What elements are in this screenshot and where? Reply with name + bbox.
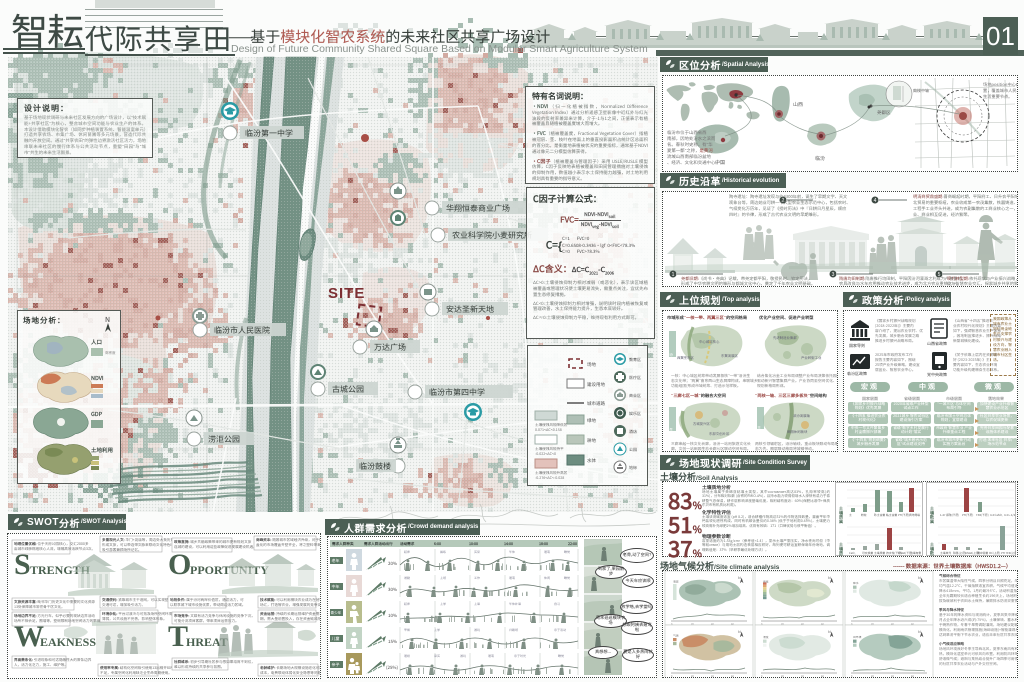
svg-text:22:00: 22:00 bbox=[568, 542, 577, 547]
svg-text:滨汾发展轴: 滨汾发展轴 bbox=[793, 413, 811, 418]
svg-text:游玩: 游玩 bbox=[460, 654, 466, 658]
svg-text:亲子: 亲子 bbox=[332, 662, 340, 668]
svg-text:、经济、文化和交通中心。: 、经济、文化和交通中心。 bbox=[667, 160, 720, 166]
svg-text:主城片区: 主城片区 bbox=[756, 425, 761, 440]
svg-text:态为先、圈层联动格局将城镇带动。: 态为先、圈层联动格局将城镇带动。 bbox=[755, 446, 816, 451]
svg-text:湿度: 湿度 bbox=[763, 635, 769, 639]
svg-text:遛弯: 遛弯 bbox=[509, 576, 515, 580]
svg-text:人，活力化乏力，施工、维护等。: 人，活力化乏力，施工、维护等。 bbox=[14, 662, 68, 668]
svg-text:PH(下层): PH(下层) bbox=[898, 513, 909, 517]
svg-text:需求人群种类: 需求人群种类 bbox=[332, 541, 354, 547]
svg-text:粘土含量: 粘土含量 bbox=[886, 513, 897, 517]
svg-text:古城复兴区: 古城复兴区 bbox=[693, 421, 711, 426]
svg-text:达到旱涝平衡下节水农业，适应未来社区共享农田用水需求。: 达到旱涝平衡下节水农业，适应未来社区共享农田用水需求。 bbox=[939, 632, 1017, 638]
svg-text:(25%): (25%) bbox=[386, 665, 398, 671]
svg-text:廊，文创一站田园生态长廊七区联动空间布局。: 廊，文创一站田园生态长廊七区联动空间布局。 bbox=[671, 446, 751, 451]
svg-text:居宜业、智慧农业中心。: 居宜业、智慧农业中心。 bbox=[875, 367, 916, 373]
svg-text:CaO₃: CaO₃ bbox=[849, 551, 855, 555]
svg-text:18:00: 18:00 bbox=[539, 542, 548, 547]
svg-text:晨练: 晨练 bbox=[440, 550, 446, 554]
svg-text:SITE: SITE bbox=[328, 285, 365, 302]
svg-text:起床: 起床 bbox=[404, 602, 410, 606]
svg-text:0.4 CaSO₄: 0.4 CaSO₄ bbox=[990, 513, 1003, 517]
svg-text:汾河生态带: 汾河生态带 bbox=[668, 353, 673, 372]
svg-text:山西: 山西 bbox=[793, 101, 803, 108]
svg-text:20%: 20% bbox=[388, 561, 397, 567]
svg-text:采买: 采买 bbox=[434, 654, 440, 658]
svg-text:T: T bbox=[168, 620, 188, 653]
svg-text:PH(下层): PH(下层) bbox=[962, 513, 973, 517]
svg-text:高密度: 高密度 bbox=[105, 351, 116, 356]
svg-text:休闲: 休闲 bbox=[544, 576, 550, 580]
svg-text:酒店: 酒店 bbox=[629, 429, 637, 435]
svg-text:土壤质量: 土壤质量 bbox=[874, 551, 885, 555]
svg-text:东部文创片区: 东部文创片区 bbox=[709, 431, 730, 436]
svg-text:PH TEB(上层): PH TEB(上层) bbox=[1001, 551, 1016, 555]
svg-text:可交换量: 可交换量 bbox=[862, 551, 873, 555]
svg-text:儿童: 儿童 bbox=[332, 636, 340, 642]
svg-text:地标: 地标 bbox=[629, 465, 637, 471]
svg-text:1: 1 bbox=[672, 272, 675, 278]
svg-text:业与智慧农业交汇，探索城乡共享的新型农业模式。: 业与智慧农业交汇，探索城乡共享的新型农业模式。 bbox=[947, 281, 1017, 286]
svg-text:西翼生态区: 西翼生态区 bbox=[677, 355, 695, 360]
svg-text:遛娃: 遛娃 bbox=[404, 654, 410, 658]
svg-text:青少年: 青少年 bbox=[331, 610, 342, 616]
svg-text:土地利用: 土地利用 bbox=[91, 446, 114, 454]
svg-text:党中央政策: 党中央政策 bbox=[927, 372, 947, 378]
svg-text:教育区: 教育区 bbox=[629, 357, 641, 363]
svg-text:14:00: 14:00 bbox=[504, 542, 513, 547]
svg-text:业、商业相互促进，经济繁荣。: 业、商业相互促进，经济繁荣。 bbox=[913, 212, 972, 218]
svg-text:形成了中华农耕文明的雏形与都城文化中心，奠定了千年农业文明基: 形成了中华农耕文明的雏形与都城文化中心，奠定了千年农业文明基础。 bbox=[681, 281, 815, 286]
svg-text:30%: 30% bbox=[388, 587, 397, 593]
svg-text:1.47 振殖(下层): 1.47 振殖(下层) bbox=[940, 513, 959, 517]
svg-text:可能分流项目客群，带来项目运营压力。: 可能分流项目客群，带来项目运营压力。 bbox=[174, 618, 239, 624]
svg-text:OC(上层): OC(上层) bbox=[989, 551, 1000, 555]
svg-text:上学: 上学 bbox=[440, 602, 446, 606]
svg-text:亩城市绿肺枢纽核心人流，增幅高效活跃节点3次。: 亩城市绿肺枢纽核心人流，增幅高效活跃节点3次。 bbox=[14, 546, 95, 552]
svg-text:国家导则: 国家导则 bbox=[849, 343, 865, 349]
svg-text:-0.022<ΔC<0: -0.022<ΔC<0 bbox=[535, 452, 556, 457]
svg-text:土壤质地: 土壤质地 bbox=[838, 542, 844, 556]
svg-text:土壤有重: 土壤有重 bbox=[910, 551, 921, 555]
svg-text:安达圣新天地: 安达圣新天地 bbox=[446, 304, 494, 315]
svg-text:通勤: 通勤 bbox=[404, 576, 410, 580]
svg-text:医疗区: 医疗区 bbox=[629, 375, 641, 381]
svg-text:降水: 降水 bbox=[853, 581, 859, 585]
svg-text:尧都区: 尧都区 bbox=[877, 110, 891, 116]
svg-text:质地等级: 质地等级 bbox=[909, 513, 920, 517]
svg-text:的社区共享农业活动与户外交往空间。: 的社区共享农业活动与户外交往空间。 bbox=[939, 661, 1000, 667]
svg-text:3: 3 bbox=[832, 272, 835, 278]
svg-text:交通可达，增加吸引活力。: 交通可达，增加吸引活力。 bbox=[102, 602, 145, 608]
svg-text:遛弯: 遛弯 bbox=[544, 550, 550, 554]
svg-text:买菜: 买菜 bbox=[474, 550, 480, 554]
svg-text:规划新格局形成。: 规划新格局形成。 bbox=[757, 383, 787, 389]
svg-text:TEB(下层): TEB(下层) bbox=[976, 513, 989, 517]
svg-text:薄弱，公共设施不完善，影响整体形象。: 薄弱，公共设施不完善，影响整体形象。 bbox=[102, 616, 167, 622]
svg-text:临汾: 临汾 bbox=[815, 155, 825, 162]
svg-text:4: 4 bbox=[874, 198, 877, 204]
svg-text:东翼发展区: 东翼发展区 bbox=[721, 353, 739, 358]
svg-text:田园休闲板块: 田园休闲板块 bbox=[787, 429, 808, 434]
svg-text:优化产业空间、促进产业转型: 优化产业空间、促进产业转型 bbox=[759, 315, 814, 321]
svg-text:期，需大量前置投入，存在资金链风险。: 期，需大量前置投入，存在资金链风险。 bbox=[260, 616, 320, 622]
svg-text:农具改良与水车应用推动农业技术进步，成为北方农业重镇之一。: 农具改良与水车应用推动农业技术进步，成为北方农业重镇之一。 bbox=[839, 281, 960, 286]
svg-text:海拔: 海拔 bbox=[673, 580, 679, 584]
svg-text:土壤单元: 土壤单元 bbox=[940, 551, 951, 555]
svg-text:土: 土 bbox=[849, 513, 852, 517]
svg-text:10%: 10% bbox=[388, 613, 397, 619]
svg-text:公园: 公园 bbox=[629, 447, 637, 453]
svg-text:土壤质属: 土壤质属 bbox=[838, 506, 844, 524]
svg-text:缓冲容量: 缓冲容量 bbox=[977, 551, 988, 555]
svg-text:耕地: 耕地 bbox=[587, 438, 596, 444]
svg-text:拔及缓坡利于农田水土保持，兼顾排水防涝双重需求。: 拔及缓坡利于农田水土保持，兼顾排水防涝双重需求。 bbox=[939, 598, 1017, 604]
svg-text:先进制造业集群: 先进制造业集群 bbox=[773, 335, 797, 340]
svg-text:坡度: 坡度 bbox=[763, 580, 769, 584]
svg-text:推进乡村振兴战略布局。: 推进乡村振兴战略布局。 bbox=[875, 338, 916, 344]
svg-text:上班: 上班 bbox=[440, 576, 446, 580]
svg-text:临汾市第四中学: 临汾市第四中学 bbox=[429, 387, 485, 398]
svg-text:睡觉: 睡觉 bbox=[564, 550, 570, 554]
svg-text:临汾区政策: 临汾区政策 bbox=[847, 371, 867, 377]
svg-text:农业科学院小麦研究所: 农业科学院小麦研究所 bbox=[452, 230, 532, 241]
svg-text:遛弯: 遛弯 bbox=[488, 654, 494, 658]
svg-text:临汾鼓楼: 临汾鼓楼 bbox=[359, 461, 391, 472]
svg-text:粉粒: 粉粒 bbox=[861, 513, 867, 517]
svg-text:睡觉: 睡觉 bbox=[558, 654, 564, 658]
svg-text:上学: 上学 bbox=[434, 628, 440, 632]
svg-text:以联享城下城市设施优质，带动周边活力区域。: 以联享城下城市设施优质，带动周边活力区域。 bbox=[170, 602, 245, 608]
svg-text:上课: 上课 bbox=[474, 602, 480, 606]
svg-text:商业区: 商业区 bbox=[629, 393, 641, 399]
svg-text:亲子时光: 亲子时光 bbox=[514, 654, 526, 658]
svg-text:睡觉: 睡觉 bbox=[564, 576, 570, 580]
svg-text:娱乐区: 娱乐区 bbox=[629, 411, 641, 417]
svg-text:场汇，打造智农业，增强发展的竞争实力。: 场汇，打造智农业，增强发展的竞争实力。 bbox=[260, 602, 320, 608]
svg-text:场地: 场地 bbox=[587, 362, 596, 368]
svg-text:0.071<ΔC<0.158: 0.071<ΔC<0.158 bbox=[535, 428, 562, 433]
svg-text:10:00: 10:00 bbox=[469, 542, 478, 547]
svg-text:产业转型工业: 产业转型工业 bbox=[801, 355, 822, 360]
svg-text:砂土含量: 砂土含量 bbox=[874, 513, 885, 517]
svg-text:工作: 工作 bbox=[474, 576, 480, 580]
svg-text:游玩: 游玩 bbox=[474, 628, 480, 632]
svg-text:兴趣班: 兴趣班 bbox=[509, 628, 518, 632]
svg-text:早餐: 早餐 bbox=[404, 628, 410, 632]
svg-text:生活重要节点。: 生活重要节点。 bbox=[983, 94, 1012, 100]
svg-text:人口: 人口 bbox=[90, 338, 102, 346]
svg-text:0.2 L.1/2: 0.2 L.1/2 bbox=[1004, 513, 1016, 517]
svg-text:水体: 水体 bbox=[587, 458, 596, 464]
svg-text:土壤数属: 土壤数属 bbox=[929, 542, 935, 556]
svg-text:临汾第一中学: 临汾第一中学 bbox=[245, 128, 293, 139]
svg-text:功能组团(形成市域统筹、打造示范样板。: 功能组团(形成市域统筹、打造示范样板。 bbox=[671, 383, 741, 389]
svg-text:中年: 中年 bbox=[332, 584, 340, 590]
svg-text:土壤数属: 土壤数属 bbox=[929, 506, 935, 524]
svg-text:临汾市人民医院: 临汾市人民医院 bbox=[214, 325, 270, 336]
svg-text:成本，电费联动体弱化安全隐患等问题。: 成本，电费联动体弱化安全隐患等问题。 bbox=[260, 670, 320, 676]
svg-text:"两核一轴、三区三廊多板块"空间结构: "两核一轴、三区三廊多板块"空间结构 bbox=[755, 393, 827, 399]
svg-text:起床: 起床 bbox=[404, 550, 410, 554]
svg-text:涝洰公园: 涝洰公园 bbox=[208, 434, 240, 445]
svg-text:亲子活动: 亲子活动 bbox=[554, 628, 566, 632]
svg-text:盖化的市场覆盖齐整齐全，将之塑料带来的资本流量。: 盖化的市场覆盖齐整齐全，将之塑料带来的资本流量。 bbox=[256, 542, 320, 548]
svg-text:城市道路: 城市道路 bbox=[587, 401, 605, 407]
svg-text:建设用地: 建设用地 bbox=[587, 382, 605, 388]
svg-text:市域形成"一核一带、两翼三区"的空间格局: 市域形成"一核一带、两翼三区"的空间格局 bbox=[667, 315, 747, 321]
svg-text:6:00: 6:00 bbox=[434, 542, 441, 547]
svg-text:新型城镇化建设。: 新型城镇化建设。 bbox=[953, 338, 983, 344]
svg-text:老年: 老年 bbox=[332, 558, 340, 564]
svg-text:GDP: GDP bbox=[91, 410, 103, 418]
svg-text:不足，专属空间化利用缺乏全生命周期使用。: 不足，专属空间化利用缺乏全生命周期使用。 bbox=[100, 670, 172, 676]
svg-text:-0.276<ΔC<-0.028: -0.276<ΔC<-0.028 bbox=[535, 476, 564, 481]
svg-text:"三廊七区一城"的融合大空间: "三廊七区一城"的融合大空间 bbox=[671, 393, 726, 399]
svg-text:万达广场: 万达广场 bbox=[374, 342, 406, 353]
svg-text:13处保障城市常住骨干区文化。: 13处保障城市常住骨干区文化。 bbox=[14, 604, 65, 610]
svg-text:山西省政策: 山西省政策 bbox=[927, 341, 947, 347]
svg-text:难以形成持续的共享参与氛围。: 难以形成持续的共享参与氛围。 bbox=[174, 664, 224, 670]
svg-text:O: O bbox=[168, 548, 191, 581]
svg-text:中心城区核心: 中心城区核心 bbox=[699, 339, 720, 344]
svg-text:华翔恒泰商业广场: 华翔恒泰商业广场 bbox=[446, 203, 510, 214]
svg-text:自习: 自习 bbox=[554, 602, 560, 606]
svg-text:吸引游客兼顾场所记忆。: 吸引游客兼顾场所记忆。 bbox=[102, 547, 142, 553]
svg-text:场所不相会足，围墙等，整侧限制场地空间活力效率低。: 场所不相会足，围墙等，整侧限制场地空间活力效率低。 bbox=[14, 618, 104, 624]
svg-text:N: N bbox=[105, 315, 110, 325]
svg-text:活动需求: 活动需求 bbox=[400, 541, 415, 547]
svg-text:绿地: 绿地 bbox=[587, 418, 596, 424]
svg-text:气温: 气温 bbox=[673, 634, 679, 638]
svg-text:NDVI: NDVI bbox=[91, 374, 104, 382]
svg-text:古城公园: 古城公园 bbox=[332, 384, 364, 395]
svg-text:风环境: 风环境 bbox=[853, 635, 862, 639]
svg-text:连城的建设，可以利用这些政策促进发展建设机遇。: 连城的建设，可以利用这些政策促进发展建设机遇。 bbox=[174, 544, 257, 550]
svg-text:午休补课: 午休补课 bbox=[509, 602, 521, 606]
svg-text:午休: 午休 bbox=[509, 550, 515, 554]
svg-text:需求人群活动出行: 需求人群活动出行 bbox=[364, 541, 393, 547]
svg-text:四时』的节律，形成了古代农业文明的早期雏形。: 四时』的节律，形成了古代农业文明的早期雏形。 bbox=[729, 212, 821, 218]
svg-text:15%: 15% bbox=[388, 639, 397, 645]
